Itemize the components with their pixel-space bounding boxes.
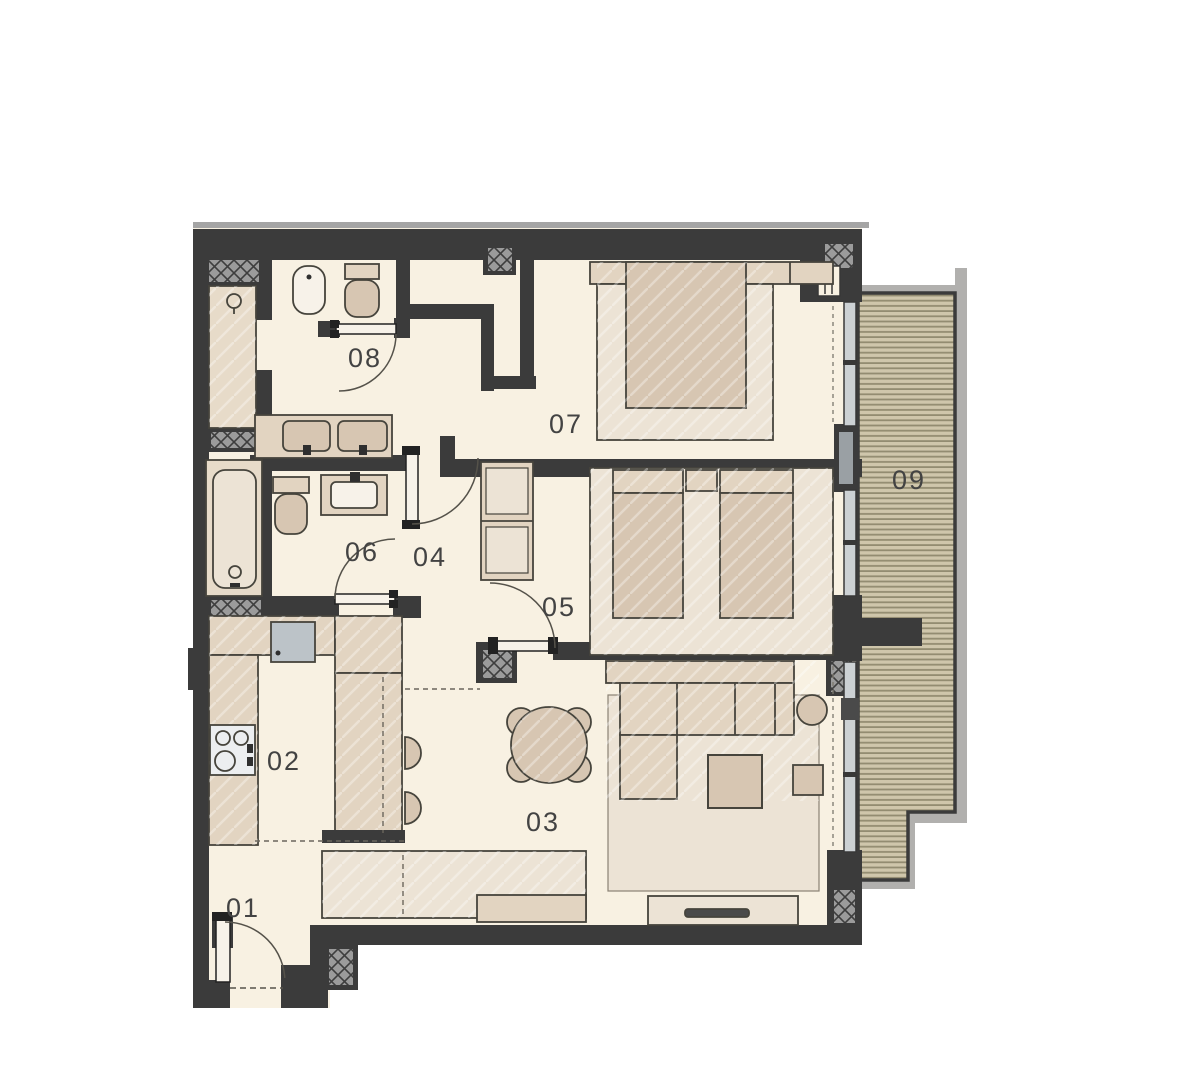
room-label-kitchen: 02: [267, 746, 301, 776]
room-label-balcony: 09: [892, 465, 926, 495]
tv-icon: [685, 909, 749, 917]
side-table-square: [793, 765, 823, 795]
column-hatch: [328, 948, 354, 986]
wall-segment-balcony-divider: [840, 618, 922, 646]
floor-plan-drawing: 01 02 03 04 05 06 07 08 09: [0, 0, 1200, 1085]
window-seam: [843, 540, 857, 545]
toilet-tank: [273, 477, 309, 493]
room-label-living-room: 03: [526, 807, 560, 837]
faucet-icon: [359, 445, 367, 455]
window-mullion-core: [839, 432, 853, 484]
balcony: [848, 268, 967, 889]
wall-segment: [193, 980, 230, 1008]
coffee-table: [708, 755, 762, 808]
bidet: [293, 266, 325, 314]
toilet-bowl: [275, 494, 307, 534]
faucet-icon: [350, 472, 360, 482]
kitchen-sink: [271, 622, 315, 662]
balcony-railing-right: [955, 268, 967, 820]
bathtub: [213, 470, 256, 588]
room-label-bedroom-05: 05: [542, 592, 576, 622]
wall-segment: [520, 258, 534, 389]
window-seam: [843, 360, 857, 365]
sliding-door-handle: [841, 698, 859, 720]
column-hatch: [210, 599, 262, 617]
wall-segment: [310, 925, 862, 945]
wall-outer-line: [193, 222, 869, 228]
sideboard-lower: [477, 895, 586, 922]
window-living-room: [844, 662, 856, 852]
wall-segment: [193, 229, 862, 260]
column-hatch: [487, 247, 513, 272]
room-label-corridor: 04: [413, 542, 447, 572]
window-seam: [843, 772, 857, 777]
faucet-icon: [276, 651, 281, 656]
room-label-bedroom-07: 07: [549, 409, 583, 439]
door-stop: [283, 978, 297, 990]
column-hatch: [208, 259, 260, 283]
room-label-entrance: 01: [226, 893, 260, 923]
wall-segment: [396, 304, 487, 319]
washbasin: [331, 482, 377, 508]
room-label-bathroom-06: 06: [345, 537, 379, 567]
toilet-tank: [345, 264, 379, 279]
toilet-bowl: [345, 280, 379, 317]
side-table-round: [797, 695, 827, 725]
faucet-icon: [303, 445, 311, 455]
wall-segment: [188, 648, 209, 690]
balcony-decking: [858, 293, 955, 880]
floor-plan-canvas: 01 02 03 04 05 06 07 08 09: [0, 0, 1200, 1085]
column-hatch: [833, 889, 856, 924]
room-label-bathroom-08: 08: [348, 343, 382, 373]
